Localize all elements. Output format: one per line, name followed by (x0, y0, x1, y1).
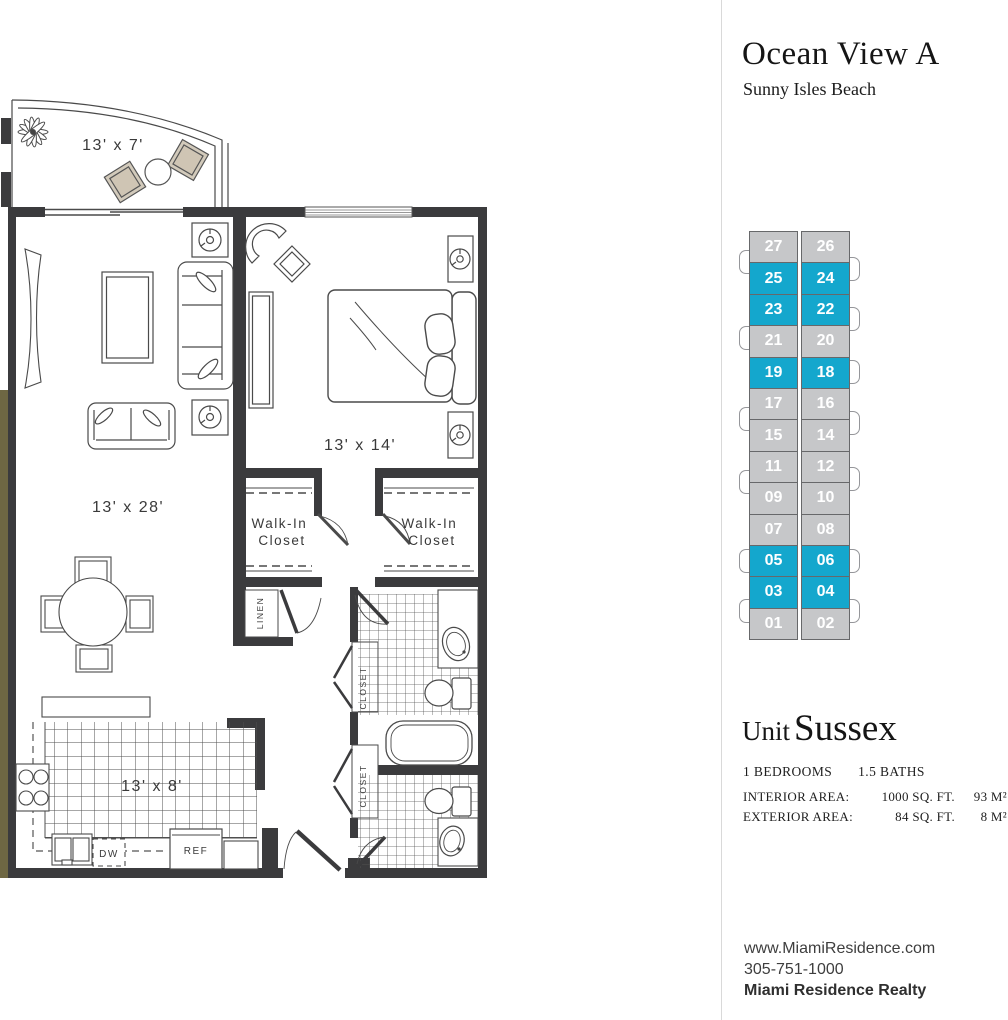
vanity-sink (438, 590, 478, 668)
floor-cell-24: 24 (801, 262, 850, 294)
floor-cell-12: 12 (801, 451, 850, 483)
panel-divider (721, 0, 722, 1020)
floor-cell-15: 15 (749, 419, 798, 451)
unit-name: Sussex (794, 708, 897, 749)
unit-title: Unit Sussex (742, 707, 897, 750)
bedrooms-value: 1 BEDROOMS (743, 764, 832, 779)
floor-cell-08: 08 (801, 514, 850, 546)
balcony-plant (18, 117, 48, 147)
bedroom-dimension: 13' x 14' (324, 437, 396, 454)
phone-text: 305-751-1000 (744, 959, 935, 980)
exterior-area-row: EXTERIOR AREA: 84 SQ. FT. 8 M² (743, 809, 1007, 825)
balcony-tab-icon (849, 307, 860, 331)
floor-cell-19: 19 (749, 357, 798, 389)
sofa (178, 262, 233, 389)
floor-cell-01: 01 (749, 608, 798, 640)
coffee-table (102, 272, 153, 363)
floor-cell-07: 07 (749, 514, 798, 546)
linen-label: LINEN (255, 597, 265, 630)
exterior-area-m2: 8 M² (955, 809, 1007, 825)
nightstand-lamp (448, 236, 473, 282)
floor-cell-04: 04 (801, 576, 850, 608)
kitchen-sink (52, 834, 92, 865)
bed-bath-line: 1 BEDROOMS1.5 BATHS (743, 764, 925, 780)
balcony-dimension: 13' x 7' (82, 137, 144, 154)
floor-cell-20: 20 (801, 325, 850, 357)
entry-door (284, 831, 340, 870)
brochure-page: { "header": { "title": "Ocean View A", "… (0, 0, 1008, 1020)
living-dimension: 13' x 28' (92, 499, 164, 516)
floor-cell-18: 18 (801, 357, 850, 389)
floor-cell-21: 21 (749, 325, 798, 357)
kitchen-dimension: 13' x 8' (121, 778, 183, 795)
end-table-lamp (192, 223, 228, 257)
floor-stack-right-column: 26242220181614121008060402 (801, 231, 850, 640)
balcony-table (145, 159, 171, 185)
interior-area-sqft: 1000 SQ. FT. (861, 789, 955, 805)
baths-value: 1.5 BATHS (858, 764, 925, 779)
unit-label: Unit (742, 716, 790, 746)
balcony-wall-block (1, 172, 11, 207)
end-table-lamp (192, 400, 228, 435)
floor-cell-23: 23 (749, 294, 798, 326)
interior-area-m2: 93 M² (955, 789, 1007, 805)
floor-cell-03: 03 (749, 576, 798, 608)
loveseat (88, 403, 175, 449)
exterior-area-sqft: 84 SQ. FT. (861, 809, 955, 825)
balcony-tab-icon (849, 549, 860, 573)
half-bath-vanity-sink (437, 818, 478, 866)
sliding-door (45, 207, 183, 217)
floor-cell-05: 05 (749, 545, 798, 577)
wall-edge-tint (0, 390, 8, 878)
tv-console (25, 249, 41, 388)
floor-stack-left-column: 27252321191715110907050301 (749, 231, 798, 640)
console-table (42, 697, 150, 717)
balcony-tab-icon (849, 257, 860, 281)
company-text: Miami Residence Realty (744, 980, 935, 1001)
floor-cell-06: 06 (801, 545, 850, 577)
refrigerator-label: REF (184, 846, 209, 857)
balcony-wall-block (1, 118, 11, 144)
balcony-tab-icon (849, 467, 860, 491)
dresser (249, 292, 273, 408)
contact-block: www.MiamiResidence.com 305-751-1000 Miam… (744, 938, 935, 1001)
floor-cell-16: 16 (801, 388, 850, 420)
stove (16, 764, 49, 811)
interior-area-label: INTERIOR AREA: (743, 789, 861, 805)
bedroom-desk-chair (246, 224, 310, 282)
interior-area-row: INTERIOR AREA: 1000 SQ. FT. 93 M² (743, 789, 1007, 805)
website-text: www.MiamiResidence.com (744, 938, 935, 959)
floor-plan: 13' x 7' (0, 0, 520, 1020)
walk-in-closet-label: Walk-In Closet (401, 516, 462, 548)
bed (328, 290, 476, 404)
page-title: Ocean View A (742, 36, 940, 73)
floor-cell-27: 27 (749, 231, 798, 263)
balcony-chair (104, 161, 145, 202)
exterior-area-label: EXTERIOR AREA: (743, 809, 861, 825)
floor-cell-02: 02 (801, 608, 850, 640)
kitchen-counter (224, 841, 258, 869)
floor-cell-09: 09 (749, 482, 798, 514)
bedroom-window (305, 207, 412, 217)
floor-cell-14: 14 (801, 419, 850, 451)
floor-cell-17: 17 (749, 388, 798, 420)
bathtub (386, 721, 472, 765)
floor-cell-25: 25 (749, 262, 798, 294)
nightstand-lamp (448, 412, 473, 458)
floor-cell-11: 11 (749, 451, 798, 483)
dining-table (41, 557, 153, 672)
balcony-tab-icon (849, 599, 860, 623)
walk-in-closet-label: Walk-In Closet (251, 516, 312, 548)
dishwasher-label: DW (99, 849, 119, 860)
balcony-tab-icon (849, 411, 860, 435)
page-subtitle: Sunny Isles Beach (743, 79, 876, 100)
floor-cell-10: 10 (801, 482, 850, 514)
floor-cell-22: 22 (801, 294, 850, 326)
balcony-tab-icon (849, 360, 860, 384)
balcony-chair (168, 140, 209, 181)
floor-cell-26: 26 (801, 231, 850, 263)
